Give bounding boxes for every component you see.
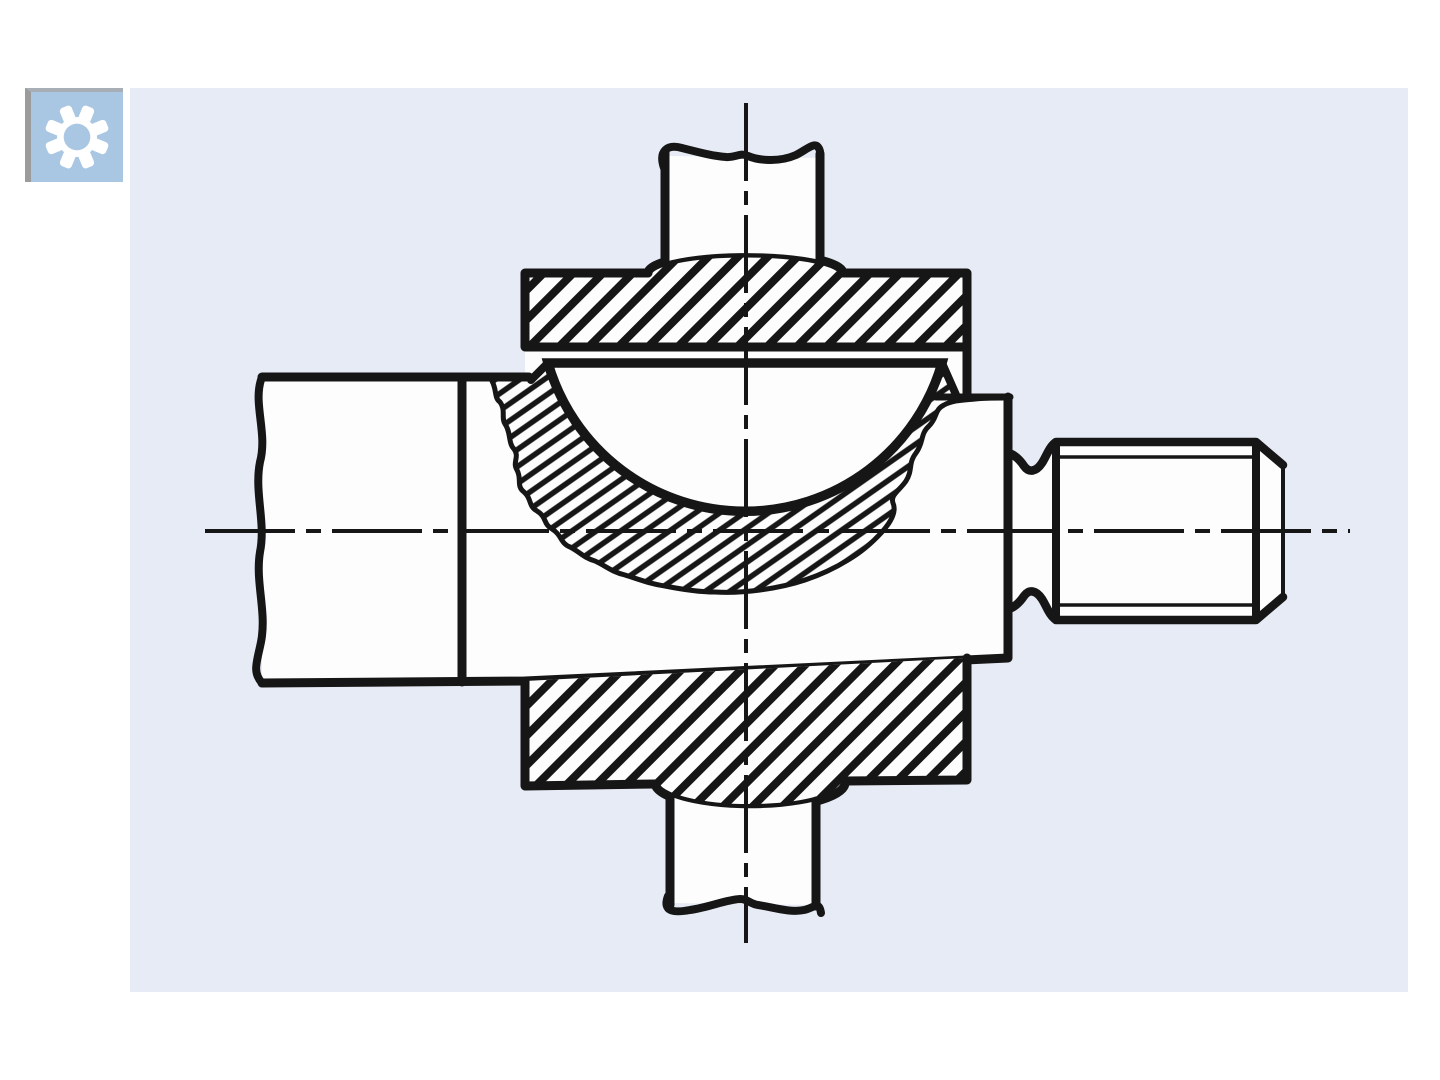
page [0,0,1440,1080]
vertical-pin-bottom [666,797,821,913]
threaded-stud [1008,397,1283,657]
technical-drawing [0,0,1440,1080]
vertical-pin-top [662,145,820,262]
